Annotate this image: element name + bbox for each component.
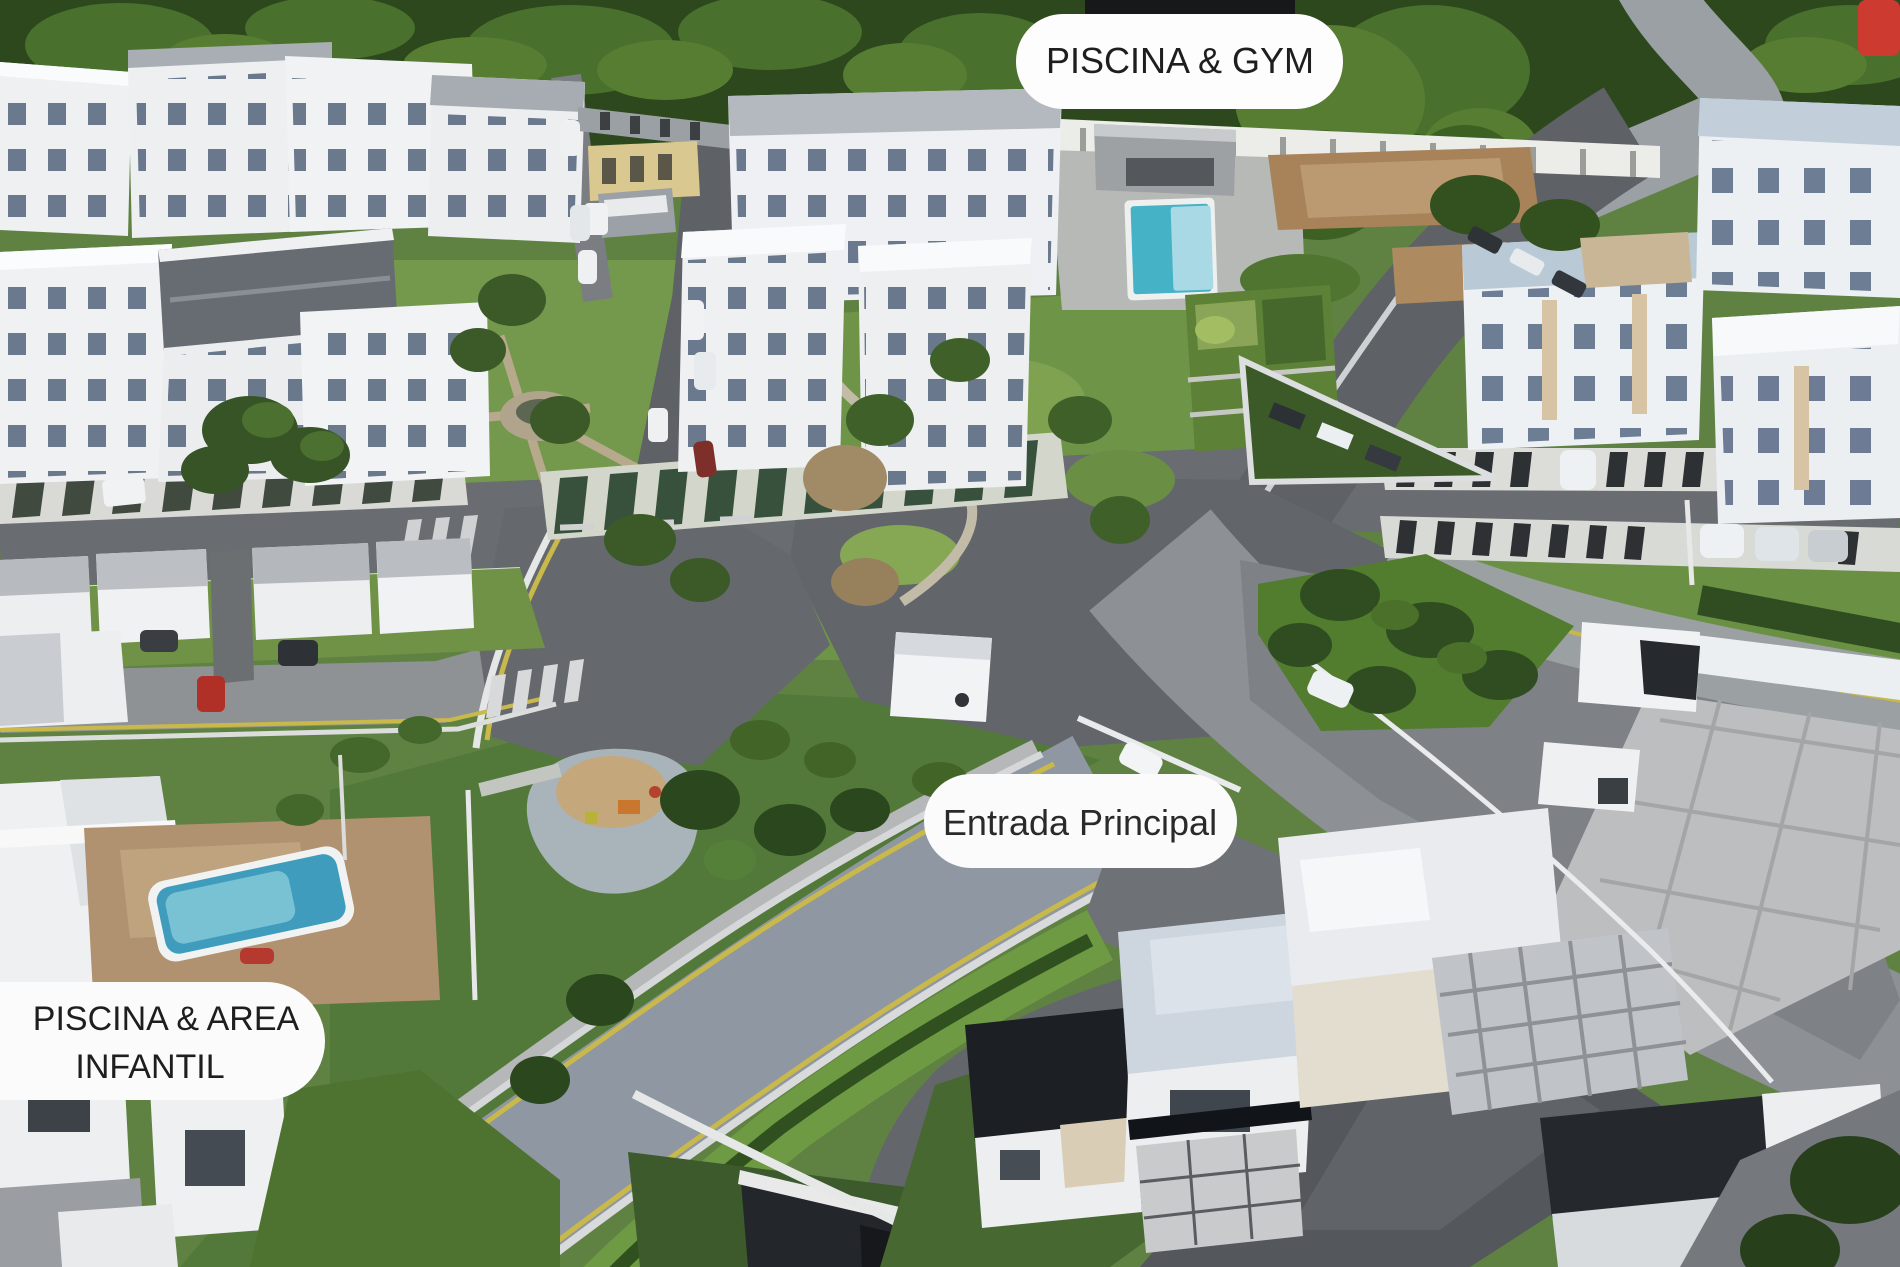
svg-text:PISCINA & GYM: PISCINA & GYM xyxy=(1046,40,1314,81)
svg-text:INFANTIL: INFANTIL xyxy=(75,1048,224,1086)
svg-text:PISCINA & AREA: PISCINA & AREA xyxy=(33,1000,300,1038)
svg-text:Entrada Principal: Entrada Principal xyxy=(943,802,1217,843)
